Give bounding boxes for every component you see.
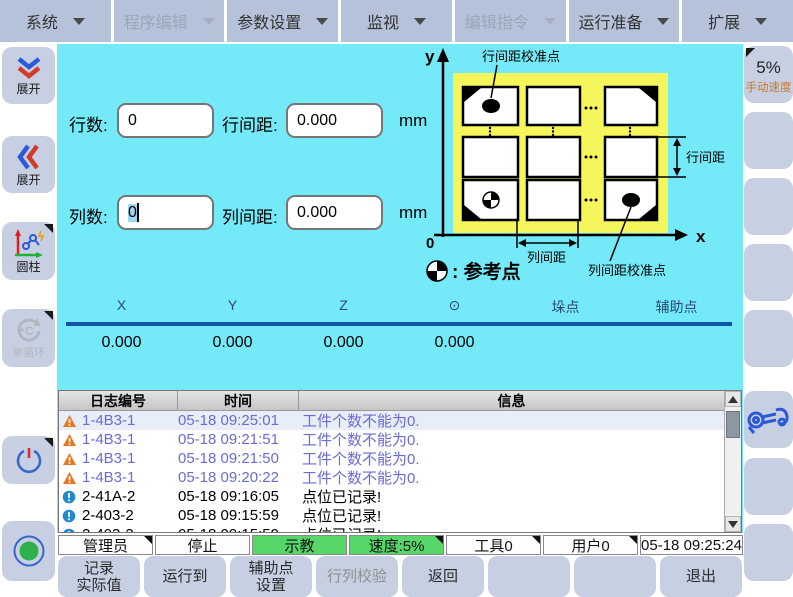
status-tool[interactable]: 工具0: [446, 535, 541, 555]
scroll-down-button[interactable]: [725, 516, 741, 532]
button-caption: 圆柱: [16, 260, 40, 274]
reference-point-mark: [483, 192, 499, 208]
log-time: 05-18 09:15:59: [178, 507, 302, 524]
power-icon: [14, 445, 44, 475]
button-label: 返回: [428, 568, 458, 585]
log-row[interactable]: 1-4B3-1 05-18 09:21:51 工件个数不能为0.: [59, 430, 724, 449]
warning-icon: [59, 452, 82, 466]
log-message: 点位已记录!: [302, 486, 724, 507]
button-label: 辅助点: [248, 560, 293, 577]
back-button[interactable]: 返回: [402, 556, 484, 597]
chevron-down-icon: [657, 18, 669, 25]
manual-speed-value: 5%: [756, 58, 781, 77]
chevron-down-icon: [316, 18, 328, 25]
rail-button-empty[interactable]: [744, 310, 793, 367]
chevron-down-icon: [203, 18, 215, 25]
button-caption: 展开: [16, 173, 40, 187]
aux-point-settings-button[interactable]: 辅助点 设置: [230, 556, 312, 597]
log-time: 05-18 09:15:59: [178, 526, 302, 533]
log-message: 工件个数不能为0.: [302, 448, 724, 469]
log-panel: 日志编号 时间 信息 1-4B3-1 05-18 09:25:01 工件个数不能…: [58, 390, 742, 533]
tool-label: 工具0: [474, 535, 512, 556]
menubar: 系统 程序编辑 参数设置 监视 编辑指令 运行准备 扩展: [0, 0, 793, 42]
warning-icon: [59, 414, 82, 428]
servo-enable-button[interactable]: [2, 521, 55, 581]
row-pitch-cal-callout: 行间距校准点: [482, 49, 560, 64]
col-header-aux-point: 辅助点: [621, 297, 732, 317]
log-id: 2-403-2: [82, 526, 178, 533]
status-mode: 示教: [252, 535, 347, 555]
robot-coordinate-icon: [12, 228, 46, 258]
col-header-stack-point: 垛点: [510, 297, 621, 317]
scrollbar-thumb[interactable]: [726, 411, 740, 438]
cols-input[interactable]: 0: [117, 195, 214, 230]
cylinder-coordinate-button[interactable]: 圆柱: [2, 222, 55, 280]
log-row-partial[interactable]: 2-403-2 05-18 09:15:59 点位已记录!: [59, 525, 724, 533]
menu-label: 参数设置: [237, 9, 301, 33]
menu-label: 运行准备: [578, 9, 642, 33]
status-run-state: 停止: [155, 535, 250, 555]
log-row[interactable]: 2-403-2 05-18 09:15:59 点位已记录!: [59, 506, 724, 525]
log-time: 05-18 09:21:50: [178, 450, 302, 467]
origin-label: 0: [426, 235, 434, 252]
soft-button-empty[interactable]: [574, 556, 656, 597]
chevron-down-icon: [73, 18, 85, 25]
log-message: 工件个数不能为0.: [302, 410, 724, 431]
log-time: 05-18 09:20:22: [178, 469, 302, 486]
manual-speed-button[interactable]: 5% 手动速度: [744, 46, 793, 103]
double-chevron-down-icon: [15, 56, 43, 80]
scroll-up-button[interactable]: [725, 391, 741, 407]
button-caption: 展开: [16, 82, 40, 96]
log-scrollbar[interactable]: [724, 391, 741, 532]
info-icon: [59, 490, 82, 504]
status-datetime: 05-18 09:25:24: [640, 535, 743, 555]
row-pitch-calibration-point: [482, 99, 500, 113]
menu-item-extension[interactable]: 扩展: [682, 0, 793, 42]
log-row[interactable]: 1-4B3-1 05-18 09:25:01 工件个数不能为0.: [59, 411, 724, 430]
rail-button-empty[interactable]: [744, 244, 793, 301]
info-icon: [59, 528, 82, 534]
button-caption: 单循环: [12, 346, 45, 360]
info-icon: [59, 509, 82, 523]
col-pitch-input[interactable]: [286, 195, 383, 230]
log-row[interactable]: 1-4B3-1 05-18 09:20:22 工件个数不能为0.: [59, 468, 724, 487]
warning-icon: [59, 471, 82, 485]
user-frame-label: 用户0: [571, 535, 609, 556]
chevron-down-icon: [414, 18, 426, 25]
row-col-verify-button: 行列校验: [316, 556, 398, 597]
mode-label: 示教: [284, 535, 314, 556]
row-pitch-dim-label: 行间距: [686, 150, 725, 165]
col-pitch-calibration-point: [622, 193, 640, 207]
col-header-x: X: [66, 297, 177, 317]
status-speed[interactable]: 速度:5%: [349, 535, 444, 555]
log-time: 05-18 09:21:51: [178, 431, 302, 448]
reference-point-legend-icon: [427, 261, 447, 281]
double-chevron-left-icon: [17, 143, 41, 171]
button-label: 实际值: [76, 577, 121, 594]
single-cycle-button: C 单循环: [2, 309, 55, 367]
menu-item-program-edit: 程序编辑: [114, 0, 225, 42]
pallet-diagram: y x 0 行间距: [420, 45, 740, 290]
exit-button[interactable]: 退出: [660, 556, 742, 597]
manual-speed-caption: 手动速度: [744, 79, 793, 95]
button-label: 记录: [84, 560, 114, 577]
log-message: 工件个数不能为0.: [302, 429, 724, 450]
servo-on-icon: [12, 534, 46, 568]
log-row[interactable]: 1-4B3-1 05-18 09:21:50 工件个数不能为0.: [59, 449, 724, 468]
log-id: 1-4B3-1: [82, 431, 178, 448]
record-actual-value-button[interactable]: 记录 实际值: [58, 556, 140, 597]
reference-point-legend-label: : 参考点: [452, 260, 521, 283]
datetime-label: 05-18 09:25:24: [641, 537, 742, 554]
col-header-rotation: ⊙: [399, 297, 510, 317]
status-user-level[interactable]: 管理员: [58, 535, 153, 555]
menu-item-monitor[interactable]: 监视: [341, 0, 452, 42]
log-header: 日志编号 时间 信息: [59, 391, 724, 411]
robot-jog-button[interactable]: [744, 391, 793, 448]
log-id: 1-4B3-1: [82, 469, 178, 486]
cols-label: 列数:: [69, 203, 108, 228]
log-id: 2-41A-2: [82, 488, 178, 505]
rail-button-empty[interactable]: [744, 112, 793, 169]
menu-item-parameter-settings[interactable]: 参数设置: [227, 0, 338, 42]
log-id: 1-4B3-1: [82, 412, 178, 429]
run-to-button[interactable]: 运行到: [144, 556, 226, 597]
log-time: 05-18 09:25:01: [178, 412, 302, 429]
header-divider-line: [66, 322, 732, 326]
svg-text:C: C: [25, 324, 34, 338]
menu-item-run-prepare[interactable]: 运行准备: [569, 0, 680, 42]
log-message: 点位已记录!: [302, 524, 724, 533]
log-col-time: 时间: [178, 391, 299, 410]
x-axis-arrow: [675, 229, 688, 241]
single-cycle-icon: C: [14, 316, 44, 344]
y-value: 0.000: [177, 334, 288, 352]
col-header-z: Z: [288, 297, 399, 317]
rail-button-empty[interactable]: [744, 178, 793, 235]
y-axis-arrow: [437, 48, 449, 62]
selected-text: 0: [128, 204, 137, 222]
run-state-label: 停止: [187, 535, 217, 556]
user-level-label: 管理员: [83, 535, 128, 556]
triangle-up-icon: [728, 396, 738, 403]
log-message: 工件个数不能为0.: [302, 467, 724, 488]
col-pitch-label: 列间距:: [222, 203, 278, 228]
col-pitch-cal-callout: 列间距校准点: [588, 263, 666, 278]
power-button[interactable]: [2, 436, 55, 484]
expand-down-button[interactable]: 展开: [2, 47, 55, 104]
button-label: 行列校验: [327, 568, 387, 585]
row-pitch-label: 行间距:: [222, 111, 278, 136]
log-message: 点位已记录!: [302, 505, 724, 526]
z-value: 0.000: [288, 334, 399, 352]
rotation-value: 0.000: [399, 334, 510, 352]
col-pitch-dim-label: 列间距: [527, 250, 566, 265]
log-id: 2-403-2: [82, 507, 178, 524]
chevron-down-icon: [755, 18, 767, 25]
y-axis-label: y: [425, 47, 435, 66]
x-value: 0.000: [66, 334, 177, 352]
coordinate-values: 0.000 0.000 0.000 0.000: [66, 330, 732, 356]
log-time: 05-18 09:16:05: [178, 488, 302, 505]
col-header-y: Y: [177, 297, 288, 317]
status-user-frame[interactable]: 用户0: [543, 535, 638, 555]
menu-item-system[interactable]: 系统: [0, 0, 111, 42]
speed-label: 速度:5%: [369, 535, 425, 556]
log-col-id: 日志编号: [59, 391, 178, 410]
menu-label: 监视: [367, 9, 399, 33]
triangle-down-icon: [728, 521, 738, 528]
menu-item-edit-instruction: 编辑指令: [455, 0, 566, 42]
menu-label: 程序编辑: [124, 9, 188, 33]
log-row[interactable]: 2-41A-2 05-18 09:16:05 点位已记录!: [59, 487, 724, 506]
x-axis-label: x: [696, 227, 706, 246]
button-label: 运行到: [162, 568, 207, 585]
rows-label: 行数:: [69, 111, 108, 136]
menu-label: 编辑指令: [465, 9, 529, 33]
rows-input[interactable]: [117, 103, 214, 138]
expand-left-button[interactable]: 展开: [2, 136, 55, 193]
coordinate-headers: X Y Z ⊙ 垛点 辅助点: [66, 297, 732, 317]
warning-icon: [59, 433, 82, 447]
soft-button-empty[interactable]: [488, 556, 570, 597]
menu-label: 扩展: [708, 9, 740, 33]
rail-button-empty[interactable]: [744, 524, 793, 581]
button-label: 退出: [686, 568, 716, 585]
menu-label: 系统: [26, 9, 58, 33]
text-caret: [137, 203, 139, 222]
robot-arm-icon: [746, 400, 792, 440]
log-col-message: 信息: [299, 391, 724, 410]
row-pitch-input[interactable]: [286, 103, 383, 138]
log-id: 1-4B3-1: [82, 450, 178, 467]
rail-button-empty[interactable]: [744, 458, 793, 515]
chevron-down-icon: [544, 18, 556, 25]
button-label: 设置: [256, 577, 286, 594]
